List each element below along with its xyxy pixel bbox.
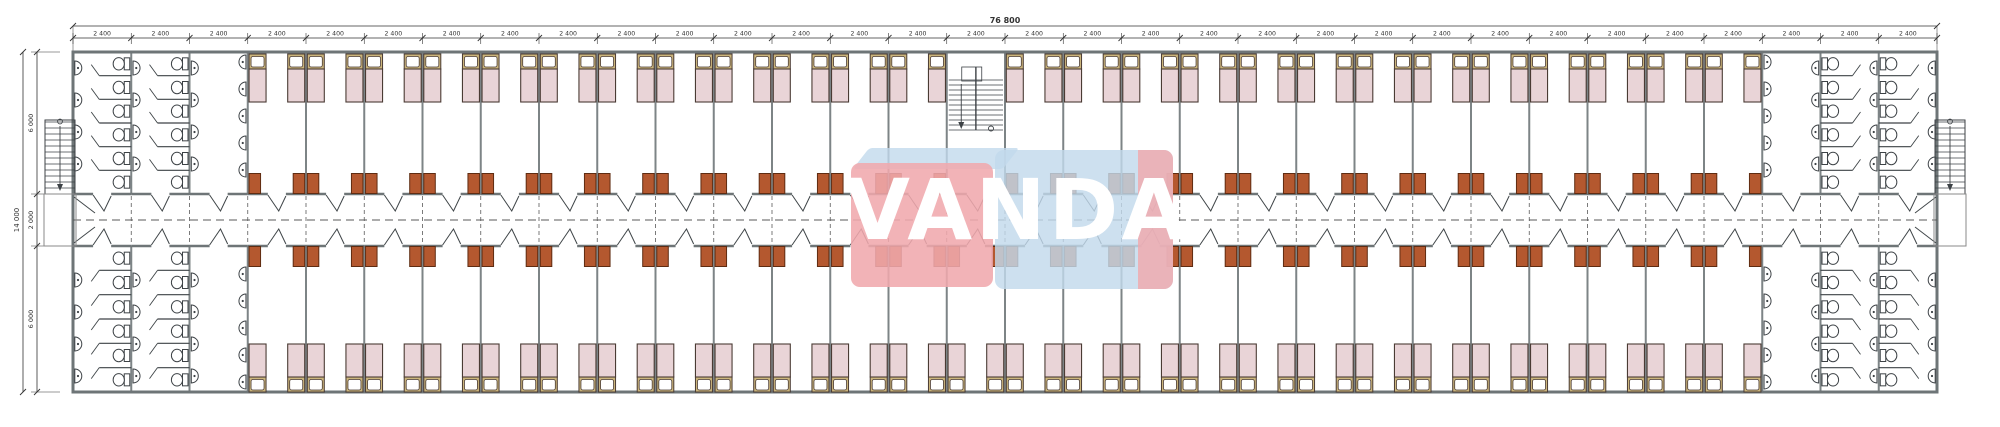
bedroom [307,54,363,194]
svg-text:2 400: 2 400 [443,31,461,38]
bathroom-bottom-left [75,252,246,389]
bedroom [1298,54,1354,194]
svg-text:2 400: 2 400 [1724,31,1742,38]
svg-text:2 000: 2 000 [27,211,35,230]
bedroom [1065,247,1121,393]
bedroom [366,54,422,194]
bedroom [249,247,305,393]
svg-text:2 400: 2 400 [152,31,170,38]
svg-text:2 400: 2 400 [851,31,869,38]
bedroom [1705,54,1761,194]
bedroom [1006,247,1062,393]
svg-text:2 400: 2 400 [1025,31,1043,38]
bedroom [424,247,480,393]
bedroom [715,54,771,194]
bedroom [1472,54,1528,194]
svg-text:2 400: 2 400 [1608,31,1626,38]
bedroom [1705,247,1761,393]
bedroom [599,247,655,393]
bedroom [1239,247,1295,393]
svg-text:2 400: 2 400 [1666,31,1684,38]
bedroom [482,247,538,393]
svg-text:2 400: 2 400 [385,31,403,38]
bedroom [1181,54,1237,194]
bathroom-top-left [75,55,246,188]
bedroom [948,247,1004,393]
bedroom [1531,54,1587,194]
central-stairwell [949,67,1003,131]
bedroom [657,54,713,194]
partition-walls [131,54,1879,391]
bedroom [1589,54,1645,194]
left-dimension: 14 0006 0002 0006 000 [13,49,60,395]
svg-text:2 400: 2 400 [1550,31,1568,38]
exterior-stair-right [1934,119,1966,246]
bedroom [307,247,363,393]
bedroom [1472,247,1528,393]
bathroom-bottom-right [1764,252,1935,389]
bedroom [424,54,480,194]
bedroom [890,54,946,194]
bedroom [1531,247,1587,393]
bedroom [1647,247,1703,393]
bedroom [366,247,422,393]
bedroom [657,247,713,393]
svg-text:2 400: 2 400 [1491,31,1509,38]
svg-text:2 400: 2 400 [734,31,752,38]
bedroom [1356,54,1412,194]
bedroom [599,54,655,194]
bedroom [832,54,888,194]
bathroom-top-right [1764,55,1935,188]
svg-text:2 400: 2 400 [967,31,985,38]
svg-text:2 400: 2 400 [1433,31,1451,38]
bedroom [1006,54,1062,194]
floor-plan-drawing: 76 8002 4002 4002 4002 4002 4002 4002 40… [0,0,2000,427]
svg-text:2 400: 2 400 [93,31,111,38]
bedroom [1298,247,1354,393]
bedroom [1065,54,1121,194]
bedroom [890,247,946,393]
svg-text:2 400: 2 400 [326,31,344,38]
svg-text:2 400: 2 400 [1899,31,1917,38]
svg-text:2 400: 2 400 [1258,31,1276,38]
svg-text:2 400: 2 400 [268,31,286,38]
svg-text:2 400: 2 400 [1142,31,1160,38]
bedroom [715,247,771,393]
corridor [73,194,1937,246]
exterior-stair-left [44,119,76,246]
bedroom [1123,54,1179,194]
bedroom [249,54,305,194]
bedroom [1589,247,1645,393]
svg-text:2 400: 2 400 [676,31,694,38]
svg-text:2 400: 2 400 [210,31,228,38]
svg-text:2 400: 2 400 [792,31,810,38]
svg-text:2 400: 2 400 [909,31,927,38]
bedroom [1181,247,1237,393]
svg-text:2 400: 2 400 [1200,31,1218,38]
bedroom [540,247,596,393]
bedroom [1123,247,1179,393]
svg-text:6 000: 6 000 [27,114,35,133]
bedroom [540,54,596,194]
floor-plan: 76 8002 4002 4002 4002 4002 4002 4002 40… [0,0,2000,427]
svg-text:14 000: 14 000 [13,208,21,233]
svg-text:2 400: 2 400 [618,31,636,38]
svg-text:2 400: 2 400 [559,31,577,38]
svg-text:2 400: 2 400 [1375,31,1393,38]
svg-text:2 400: 2 400 [501,31,519,38]
svg-text:2 400: 2 400 [1084,31,1102,38]
top-dimension: 76 8002 4002 4002 4002 4002 4002 4002 40… [70,16,1940,52]
bedroom [1356,247,1412,393]
svg-text:76 800: 76 800 [990,16,1021,25]
bedroom [1647,54,1703,194]
svg-text:2 400: 2 400 [1841,31,1859,38]
bedroom [832,247,888,393]
bedroom [1414,247,1470,393]
svg-text:2 400: 2 400 [1317,31,1335,38]
bedroom [773,247,829,393]
bedroom [773,54,829,194]
bedroom [1414,54,1470,194]
bedroom [482,54,538,194]
svg-text:6 000: 6 000 [27,310,35,329]
svg-text:2 400: 2 400 [1783,31,1801,38]
bedroom [1239,54,1295,194]
